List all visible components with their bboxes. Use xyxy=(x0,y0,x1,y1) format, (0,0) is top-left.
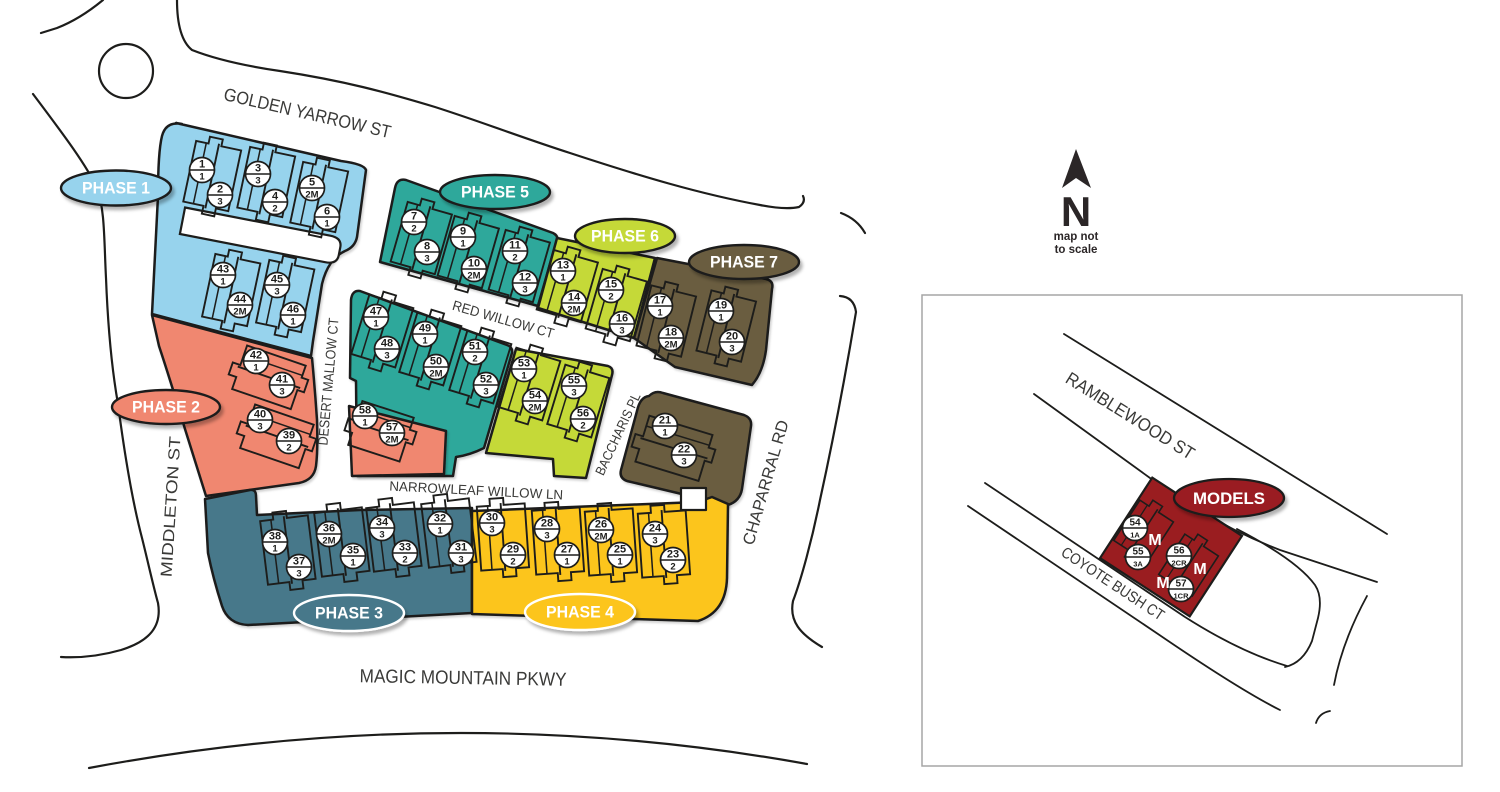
svg-text:56: 56 xyxy=(577,408,589,420)
svg-text:MODELS: MODELS xyxy=(1193,490,1265,508)
svg-text:1: 1 xyxy=(460,239,466,250)
svg-text:55: 55 xyxy=(1132,547,1144,558)
svg-text:15: 15 xyxy=(605,279,617,291)
svg-text:35: 35 xyxy=(347,545,359,557)
svg-text:55: 55 xyxy=(568,375,580,387)
svg-text:3: 3 xyxy=(424,254,429,265)
svg-text:1: 1 xyxy=(220,277,226,288)
svg-text:54: 54 xyxy=(1129,518,1141,529)
svg-text:49: 49 xyxy=(419,323,431,335)
svg-text:21: 21 xyxy=(659,415,671,427)
svg-text:17: 17 xyxy=(654,295,666,307)
svg-text:2: 2 xyxy=(472,354,477,365)
svg-text:PHASE 2: PHASE 2 xyxy=(132,399,200,417)
svg-text:47: 47 xyxy=(370,306,382,318)
svg-text:M: M xyxy=(1148,532,1161,549)
svg-text:14: 14 xyxy=(568,292,581,304)
svg-text:2: 2 xyxy=(217,184,223,196)
svg-text:9: 9 xyxy=(460,226,466,238)
svg-text:3: 3 xyxy=(489,525,494,536)
svg-text:2M: 2M xyxy=(385,435,398,446)
svg-text:2M: 2M xyxy=(664,340,677,351)
svg-text:2: 2 xyxy=(402,555,407,566)
svg-text:3: 3 xyxy=(681,457,686,468)
svg-text:41: 41 xyxy=(276,374,288,386)
svg-text:2: 2 xyxy=(272,204,277,215)
svg-text:2: 2 xyxy=(670,562,675,573)
svg-text:39: 39 xyxy=(283,430,295,442)
svg-text:2M: 2M xyxy=(233,307,246,318)
svg-text:23: 23 xyxy=(667,549,679,561)
svg-text:1: 1 xyxy=(253,363,259,374)
svg-text:2: 2 xyxy=(411,224,416,235)
svg-text:19: 19 xyxy=(715,300,727,312)
svg-text:3: 3 xyxy=(379,530,384,541)
svg-text:3: 3 xyxy=(296,569,301,580)
svg-text:PHASE 5: PHASE 5 xyxy=(461,184,529,202)
svg-text:40: 40 xyxy=(254,409,266,421)
svg-text:51: 51 xyxy=(469,341,481,353)
svg-text:42: 42 xyxy=(250,350,262,362)
svg-text:3: 3 xyxy=(522,285,527,296)
svg-text:3: 3 xyxy=(279,387,284,398)
svg-text:30: 30 xyxy=(486,512,498,524)
svg-text:PHASE 1: PHASE 1 xyxy=(82,180,150,198)
svg-text:1: 1 xyxy=(373,319,379,330)
svg-text:2M: 2M xyxy=(429,369,442,380)
svg-text:N: N xyxy=(1061,188,1091,235)
svg-text:50: 50 xyxy=(430,356,442,368)
svg-text:43: 43 xyxy=(217,264,229,276)
svg-text:3: 3 xyxy=(571,388,576,399)
svg-text:PHASE 3: PHASE 3 xyxy=(315,605,383,623)
svg-text:2: 2 xyxy=(512,253,517,264)
svg-text:45: 45 xyxy=(271,274,283,286)
svg-text:13: 13 xyxy=(557,260,569,272)
svg-text:18: 18 xyxy=(665,327,677,339)
svg-text:48: 48 xyxy=(381,338,393,350)
svg-text:54: 54 xyxy=(529,390,542,402)
svg-text:22: 22 xyxy=(678,444,690,456)
svg-text:2: 2 xyxy=(608,292,613,303)
svg-text:2M: 2M xyxy=(528,403,541,414)
svg-text:12: 12 xyxy=(519,272,531,284)
svg-text:1: 1 xyxy=(199,159,205,171)
svg-text:PHASE 4: PHASE 4 xyxy=(546,604,615,622)
svg-text:1: 1 xyxy=(290,317,296,328)
svg-text:58: 58 xyxy=(359,405,371,417)
svg-text:2: 2 xyxy=(510,557,515,568)
svg-text:3: 3 xyxy=(652,536,657,547)
svg-text:1: 1 xyxy=(662,428,668,439)
svg-text:2M: 2M xyxy=(305,190,318,201)
svg-text:2M: 2M xyxy=(567,305,580,316)
svg-text:to scale: to scale xyxy=(1055,244,1098,256)
svg-text:1: 1 xyxy=(437,526,443,537)
svg-text:1: 1 xyxy=(272,544,278,555)
svg-text:M: M xyxy=(1156,575,1169,592)
svg-text:53: 53 xyxy=(518,358,530,370)
svg-text:PHASE 6: PHASE 6 xyxy=(591,228,659,246)
svg-text:37: 37 xyxy=(293,556,305,568)
svg-text:31: 31 xyxy=(455,542,467,554)
svg-text:38: 38 xyxy=(269,531,281,543)
svg-text:2M: 2M xyxy=(467,271,480,282)
svg-text:32: 32 xyxy=(434,513,446,525)
svg-text:3: 3 xyxy=(257,422,262,433)
svg-text:3: 3 xyxy=(544,531,549,542)
svg-text:36: 36 xyxy=(323,523,335,535)
svg-text:3: 3 xyxy=(255,176,260,187)
svg-text:34: 34 xyxy=(376,517,389,529)
svg-text:20: 20 xyxy=(726,331,738,343)
svg-text:1A: 1A xyxy=(1130,531,1140,540)
svg-text:MAGIC MOUNTAIN PKWY: MAGIC MOUNTAIN PKWY xyxy=(359,666,567,691)
svg-text:2M: 2M xyxy=(594,532,607,543)
svg-text:1: 1 xyxy=(617,557,623,568)
svg-text:3: 3 xyxy=(483,387,488,398)
svg-text:PHASE 7: PHASE 7 xyxy=(710,254,778,272)
svg-text:10: 10 xyxy=(468,258,480,270)
svg-text:1: 1 xyxy=(657,308,663,319)
svg-text:1CR: 1CR xyxy=(1173,592,1189,601)
svg-text:map not: map not xyxy=(1054,231,1099,243)
svg-text:3: 3 xyxy=(384,351,389,362)
svg-text:3: 3 xyxy=(729,344,734,355)
svg-text:2: 2 xyxy=(580,421,585,432)
svg-text:3: 3 xyxy=(274,287,279,298)
svg-text:33: 33 xyxy=(399,542,411,554)
svg-text:26: 26 xyxy=(595,519,607,531)
svg-text:1: 1 xyxy=(521,371,527,382)
svg-text:7: 7 xyxy=(411,211,417,223)
svg-text:3: 3 xyxy=(458,555,463,566)
svg-text:56: 56 xyxy=(1173,546,1185,557)
svg-text:29: 29 xyxy=(507,544,519,556)
svg-text:3: 3 xyxy=(255,163,261,175)
svg-text:1: 1 xyxy=(199,172,205,183)
svg-text:16: 16 xyxy=(616,313,628,325)
svg-text:6: 6 xyxy=(324,206,330,218)
svg-text:52: 52 xyxy=(480,374,492,386)
svg-text:24: 24 xyxy=(649,523,662,535)
svg-text:5: 5 xyxy=(309,177,315,189)
svg-text:57: 57 xyxy=(386,422,398,434)
svg-text:3: 3 xyxy=(217,197,222,208)
svg-text:44: 44 xyxy=(234,294,247,306)
svg-text:3: 3 xyxy=(619,326,624,337)
svg-text:2CR: 2CR xyxy=(1171,559,1187,568)
svg-text:1: 1 xyxy=(560,273,566,284)
svg-text:46: 46 xyxy=(287,304,299,316)
svg-text:1: 1 xyxy=(718,313,724,324)
svg-text:8: 8 xyxy=(424,241,430,253)
svg-text:25: 25 xyxy=(614,544,626,556)
svg-text:1: 1 xyxy=(350,558,356,569)
svg-text:1: 1 xyxy=(362,418,368,429)
svg-text:1: 1 xyxy=(422,336,428,347)
svg-text:2: 2 xyxy=(286,443,291,454)
svg-text:1: 1 xyxy=(324,219,330,230)
svg-text:27: 27 xyxy=(561,544,573,556)
svg-text:4: 4 xyxy=(272,191,279,203)
svg-text:11: 11 xyxy=(509,240,521,252)
svg-text:M: M xyxy=(1193,561,1206,578)
svg-text:2M: 2M xyxy=(322,536,335,547)
svg-text:28: 28 xyxy=(541,518,553,530)
svg-text:3A: 3A xyxy=(1133,560,1143,569)
svg-text:1: 1 xyxy=(564,557,570,568)
svg-text:57: 57 xyxy=(1175,579,1187,590)
